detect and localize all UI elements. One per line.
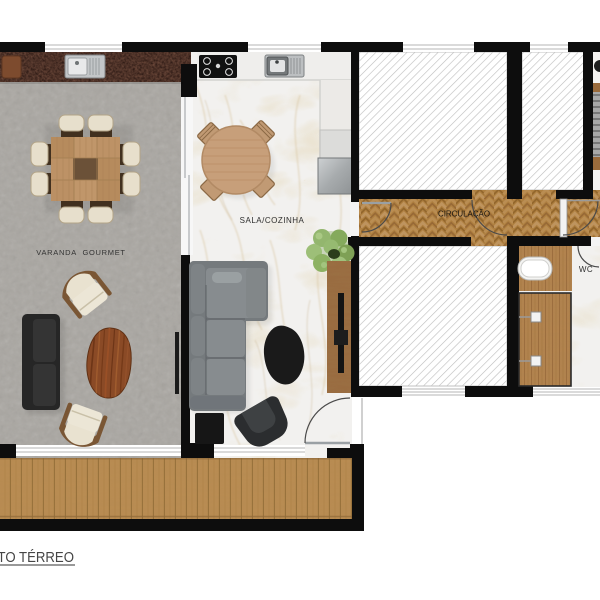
svg-text:CIRCULAÇÃO: CIRCULAÇÃO (438, 210, 490, 219)
svg-text:NTO TÉRREO: NTO TÉRREO (0, 549, 74, 566)
svg-text:SALA/COZINHA: SALA/COZINHA (240, 216, 305, 225)
svg-text:VARANDA GOURMET: VARANDA GOURMET (36, 248, 125, 257)
svg-text:WC: WC (579, 265, 593, 274)
